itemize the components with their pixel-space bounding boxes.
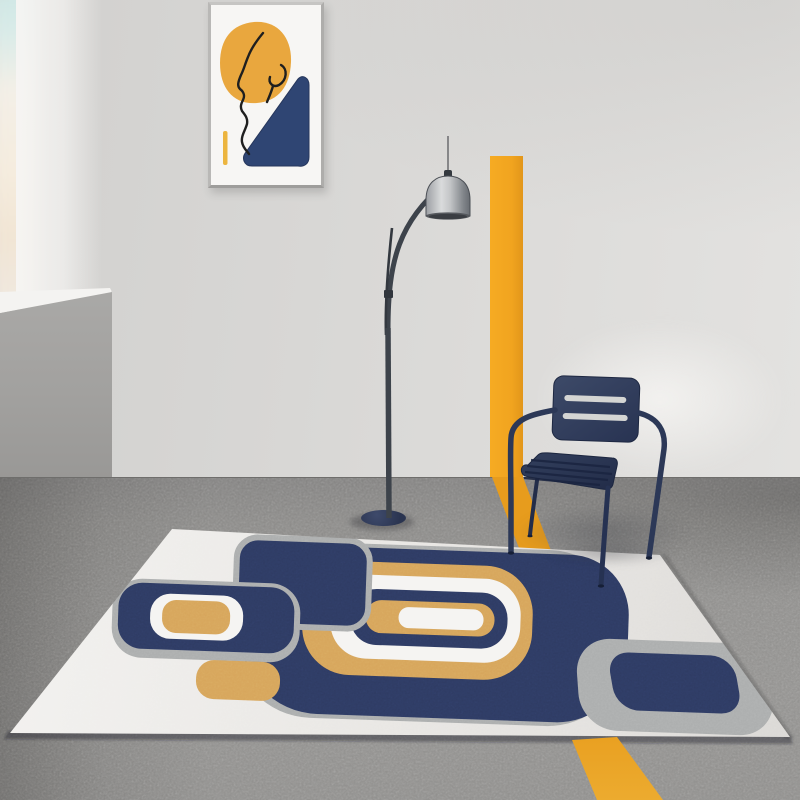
wall-art-print (211, 5, 321, 185)
lamp-clamp (384, 290, 393, 298)
metal-armchair (498, 363, 668, 593)
wall-art-frame (208, 2, 324, 188)
room-scene (0, 0, 800, 800)
floor-lamp (340, 130, 480, 530)
lamp-shade (426, 176, 470, 216)
lamp-shade-inner (429, 214, 467, 219)
chair-right-arm-leg (639, 413, 664, 557)
art-yellow-blob (220, 22, 291, 103)
art-yellow-dash (223, 131, 228, 165)
chair-feet (508, 535, 652, 588)
chair-front-right-leg (601, 488, 608, 585)
lamp-pole (388, 328, 389, 518)
chair-backrest (552, 376, 640, 443)
left-wall-highlight (16, 0, 102, 302)
half-wall-front-face (0, 285, 112, 479)
